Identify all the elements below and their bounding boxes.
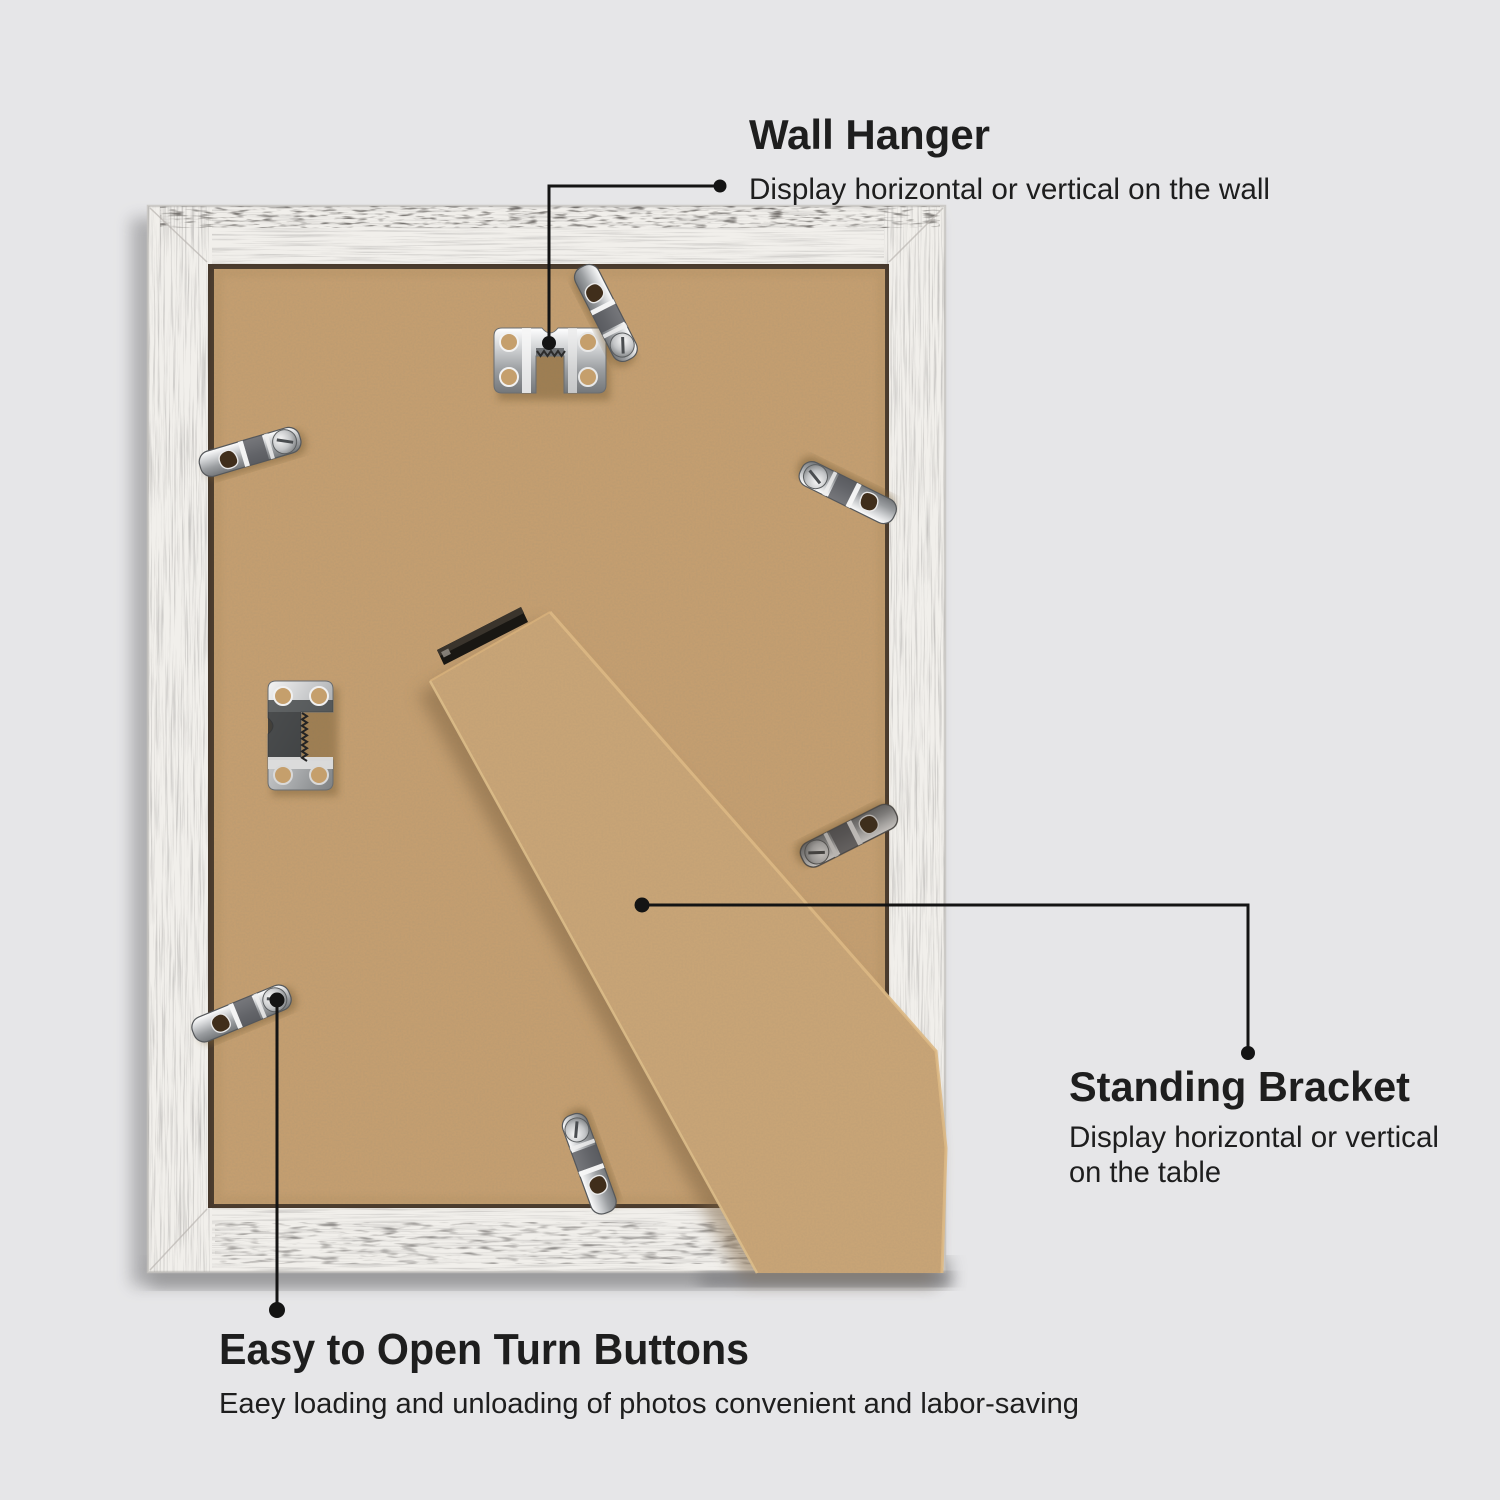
svg-text:Easy to Open Turn Buttons: Easy to Open Turn Buttons	[219, 1325, 749, 1374]
svg-text:on the table: on the table	[1069, 1156, 1221, 1189]
svg-text:Display horizontal or vertical: Display horizontal or vertical on the wa…	[749, 173, 1270, 206]
svg-text:Eaey loading and unloading of: Eaey loading and unloading of photos con…	[219, 1388, 1079, 1420]
svg-text:Standing Bracket: Standing Bracket	[1069, 1063, 1410, 1110]
svg-text:Display horizontal or vertical: Display horizontal or vertical	[1069, 1121, 1439, 1154]
svg-text:Wall Hanger: Wall Hanger	[749, 111, 990, 158]
